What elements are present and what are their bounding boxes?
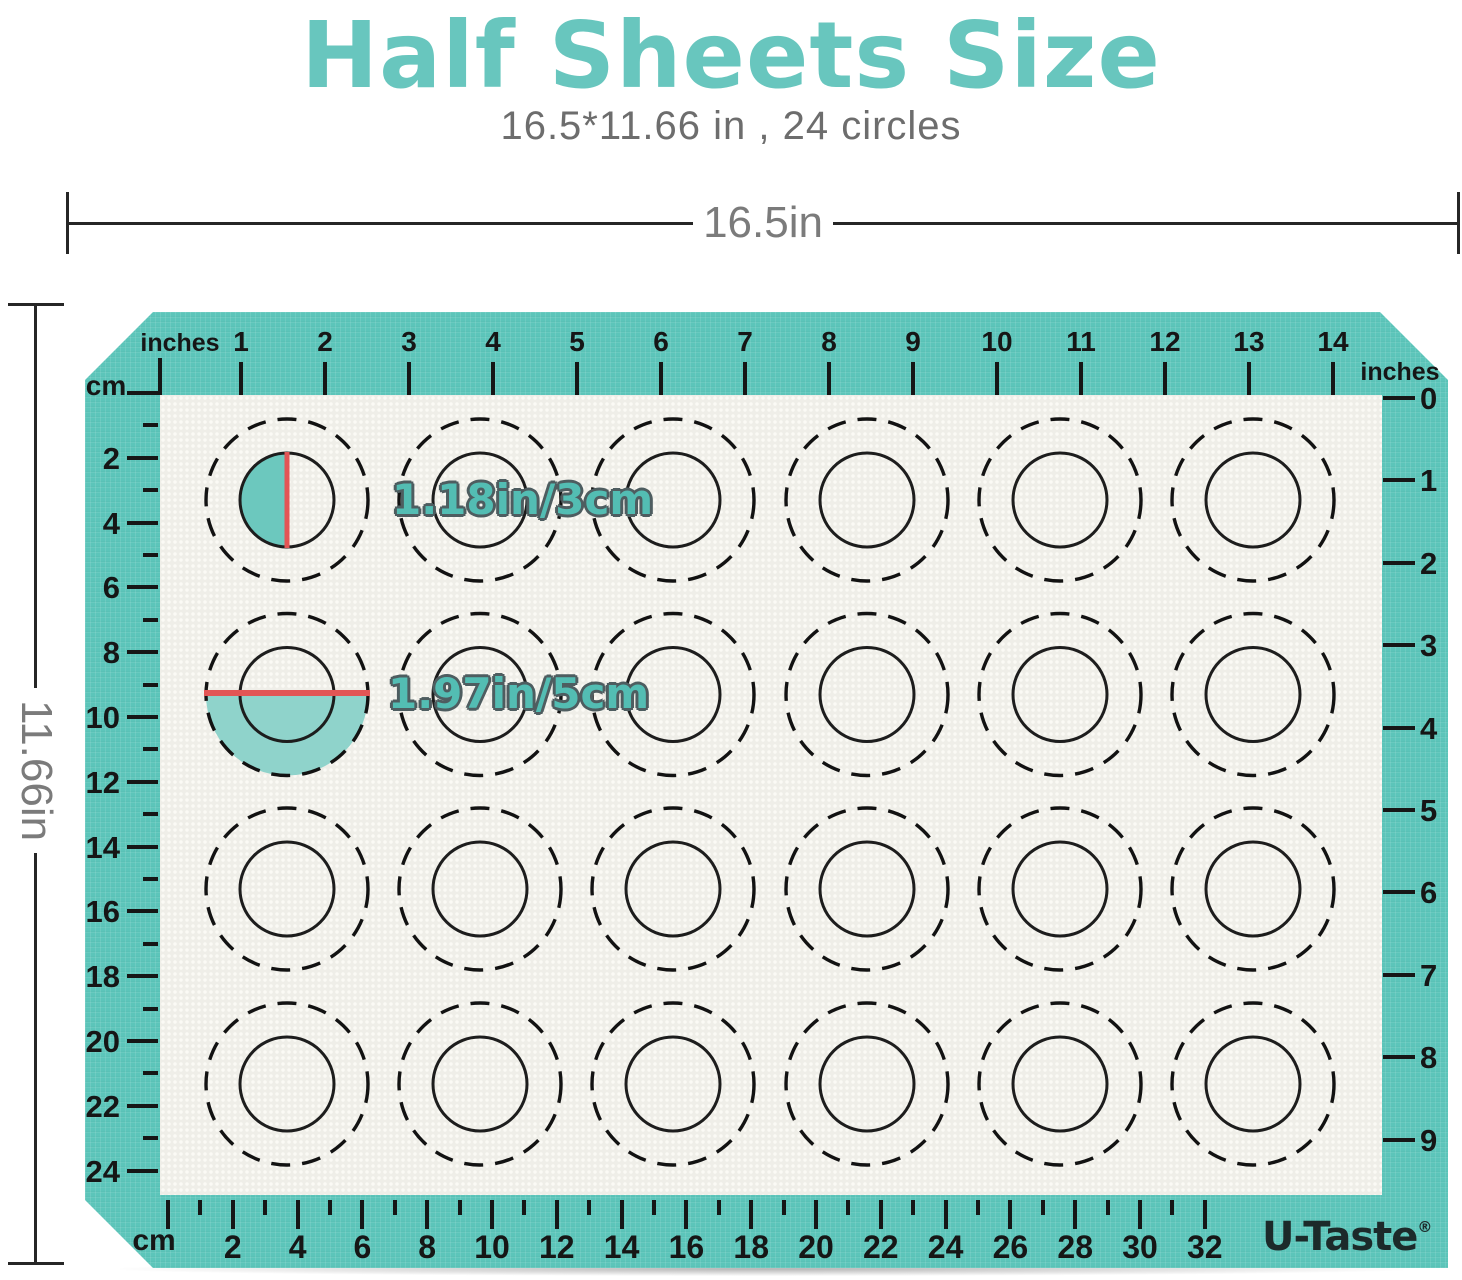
page-subtitle: 16.5*11.66 in , 24 circles <box>0 104 1462 149</box>
dimension-end-tick <box>8 1262 64 1265</box>
width-dimension-label: 16.5in <box>693 198 833 248</box>
mat-surface <box>160 395 1382 1195</box>
brand-logo: U-Taste® <box>1262 1214 1432 1260</box>
height-dimension-label: 11.66in <box>9 688 63 853</box>
dimension-end-tick <box>66 192 69 254</box>
registered-trademark-icon: ® <box>1417 1218 1432 1236</box>
product-infographic: Half Sheets Size 16.5*11.66 in , 24 circ… <box>0 0 1462 1280</box>
dimension-end-tick <box>1457 192 1460 254</box>
annotation-small-circle: 1.18in/3cm <box>392 474 653 526</box>
page-title: Half Sheets Size <box>0 2 1462 109</box>
width-dimension: 16.5in <box>66 192 1460 254</box>
height-dimension: 11.66in <box>8 303 66 1265</box>
dimension-line <box>66 222 693 225</box>
brand-logo-text: U-Taste <box>1262 1214 1417 1260</box>
dimension-line <box>833 222 1460 225</box>
annotation-large-circle: 1.97in/5cm <box>388 668 649 720</box>
baking-mat <box>85 312 1448 1268</box>
